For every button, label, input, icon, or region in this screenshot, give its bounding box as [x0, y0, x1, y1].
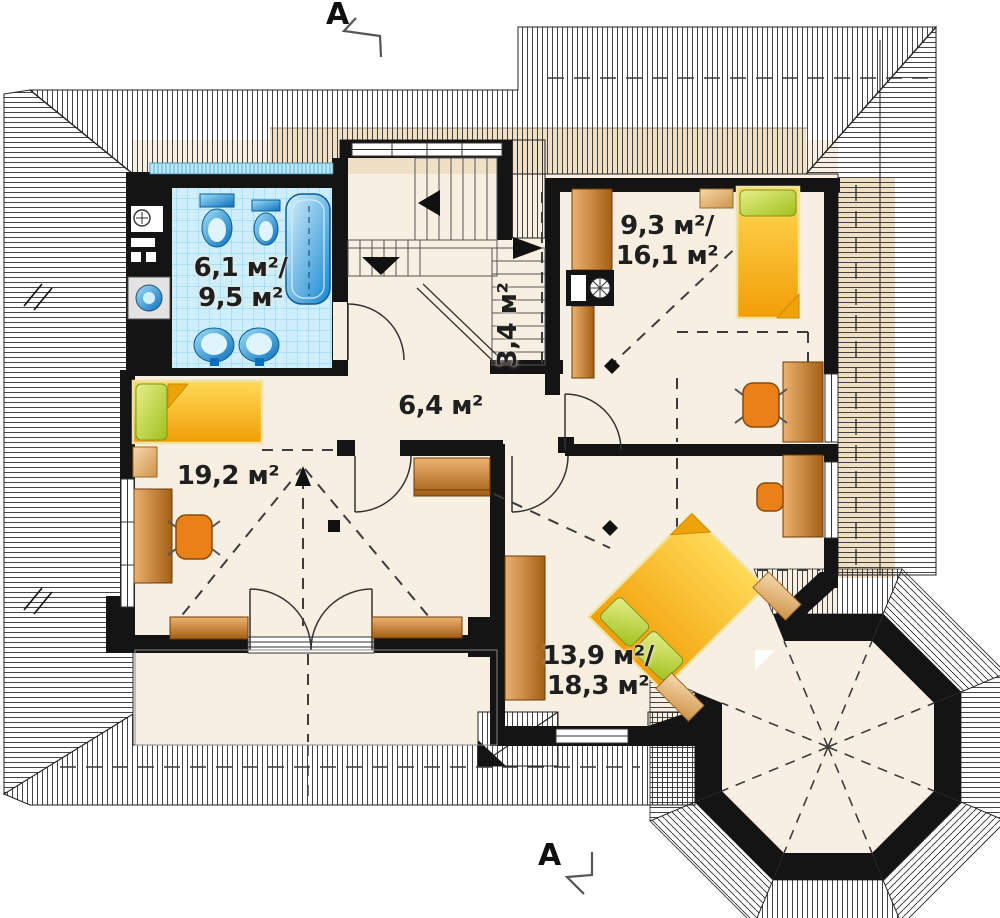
room-label-bedroom-left: 19,2 м² [168, 461, 288, 491]
roof-left [4, 90, 133, 794]
room-label-bathroom: 6,1 м²/ 9,5 м² [168, 253, 313, 313]
office-chair-icon [735, 383, 787, 427]
desk-icon [134, 489, 172, 583]
room-area-secondary: 16,1 м² [607, 241, 727, 271]
room-area-primary: 13,9 м²/ [534, 641, 662, 671]
desk-icon [783, 362, 823, 442]
pillow-icon [136, 384, 167, 440]
nightstand-icon [133, 447, 157, 477]
floor-plan: 6,1 м²/ 9,5 м² 3,4 м² 6,4 м² 19,2 м² 9,3… [0, 0, 1000, 918]
bottom-window [556, 729, 628, 743]
washing-machine-icon [128, 277, 170, 319]
dresser-icon [414, 458, 490, 496]
room-area-primary: 6,4 м² [383, 391, 498, 421]
cabinet-icon [170, 617, 248, 639]
right-window-1 [825, 374, 838, 442]
wardrobe-icon [572, 189, 612, 270]
desk-icon [783, 455, 823, 537]
pillow-icon [740, 190, 796, 216]
room-area-primary: 6,1 м²/ [168, 253, 313, 283]
section-marker-top: A [326, 0, 349, 30]
cabinet-icon [572, 306, 594, 378]
room-area-secondary: 18,3 м² [534, 671, 662, 701]
room-area-primary: 3,4 м² [493, 277, 523, 373]
room-label-bedroom-bottom-right: 13,9 м²/ 18,3 м² [534, 641, 662, 701]
room-label-staircase: 3,4 м² [493, 277, 523, 373]
nightstand-icon [700, 189, 733, 208]
bed-icon [133, 381, 262, 443]
office-chair-icon [168, 515, 220, 559]
left-window [121, 479, 134, 607]
plan-drawing [0, 0, 1000, 918]
room-area-primary: 9,3 м²/ [607, 211, 727, 241]
right-window-2 [825, 462, 838, 538]
bed-icon [737, 187, 799, 318]
bidet-icon [252, 200, 280, 245]
toilet-icon [200, 194, 234, 247]
room-area-primary: 19,2 м² [168, 461, 288, 491]
room-label-bedroom-top-right: 9,3 м²/ 16,1 м² [607, 211, 727, 271]
stair-window [352, 143, 502, 156]
section-marker-letter: A [538, 838, 561, 873]
cabinet-icon [372, 617, 462, 638]
skylight-band [150, 163, 333, 174]
chimney-icon [566, 270, 614, 306]
room-label-hall: 6,4 м² [383, 391, 498, 421]
section-marker-bottom: A [538, 841, 561, 871]
bathroom-door-opening [333, 302, 347, 360]
stool-icon [757, 483, 783, 511]
section-marker-letter: A [326, 0, 349, 32]
room-area-secondary: 9,5 м² [168, 283, 313, 313]
